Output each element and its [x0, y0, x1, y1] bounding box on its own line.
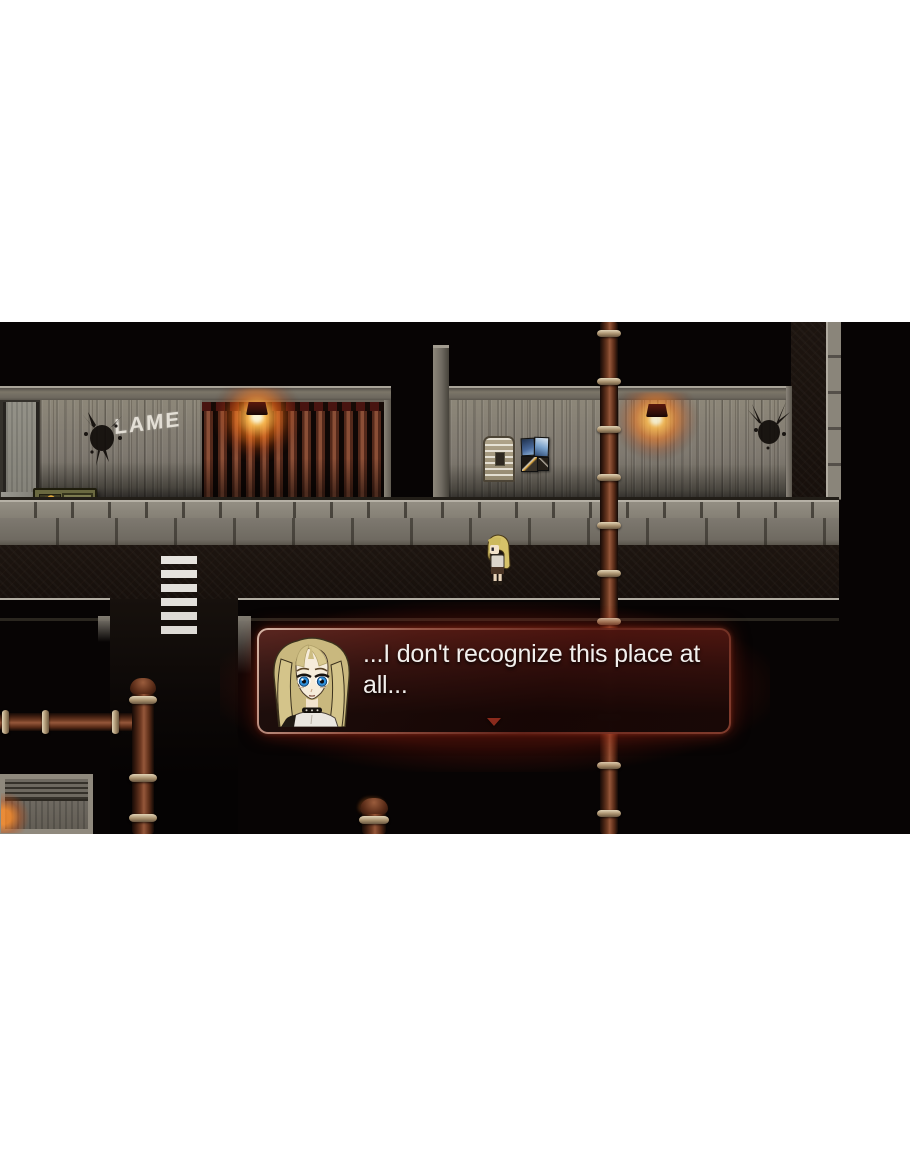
dialog-text-line2: all... [363, 670, 700, 701]
antler-splatter-icon [744, 394, 794, 452]
crosswalk-stripe [161, 612, 197, 620]
crosswalk-stripe [161, 570, 197, 578]
pipe-joint [42, 710, 49, 734]
pipe-joint [597, 522, 621, 529]
pipe-joint [112, 710, 119, 734]
pipe-joint [597, 570, 621, 577]
north-alley-road [791, 322, 827, 500]
pipe-joint [129, 814, 157, 822]
dialog-text: ...I don't recognize this place at all..… [363, 639, 700, 701]
south-curb-left [0, 598, 110, 621]
bulletin-board [483, 436, 515, 482]
dialog-box[interactable]: ...I don't recognize this place at all..… [257, 628, 731, 734]
pipe-joint [2, 710, 9, 734]
rachel-portrait [267, 635, 357, 727]
pipe-joint [597, 330, 621, 337]
poster-icon [521, 456, 538, 472]
sidewalk-tile-row [0, 518, 839, 547]
crosswalk-stripe [161, 598, 197, 606]
pipe-joint [597, 426, 621, 433]
board-slot [495, 452, 505, 466]
pipe-joint [597, 474, 621, 481]
right-parapet-column [433, 345, 449, 503]
wall-lamp2-icon [646, 404, 668, 417]
pipe-cap [130, 678, 156, 694]
shed-building [0, 774, 93, 834]
pipe-joint [597, 810, 621, 817]
south-curb-left-corner [98, 616, 110, 642]
shed-fire-glow [1, 793, 31, 833]
doorway-shutter [3, 402, 39, 492]
crosswalk-stripe [161, 556, 197, 564]
pipe-stub-cap [360, 798, 388, 814]
continue-indicator-icon[interactable] [487, 718, 501, 726]
pipe-joint [129, 774, 157, 782]
poster-icon [537, 457, 549, 471]
fence-end-post [384, 400, 391, 497]
poster-icon [534, 437, 550, 458]
game-viewport[interactable]: LAME [0, 322, 910, 834]
wall-splatter-icon [76, 404, 128, 472]
crosswalk-stripe [161, 584, 197, 592]
pipe-joint [129, 696, 157, 704]
north-alley-curb [826, 322, 841, 500]
crosswalk-stripe [161, 626, 197, 634]
dialog-text-line1: ...I don't recognize this place at [363, 639, 700, 670]
rachel-sprite [481, 532, 515, 590]
left-vertical-pipe [132, 688, 154, 834]
pipe-joint [359, 816, 389, 824]
pipe-joint [597, 378, 621, 385]
road [0, 545, 839, 599]
wall-lamp1-icon [246, 402, 268, 415]
horizontal-pipe [0, 713, 140, 731]
